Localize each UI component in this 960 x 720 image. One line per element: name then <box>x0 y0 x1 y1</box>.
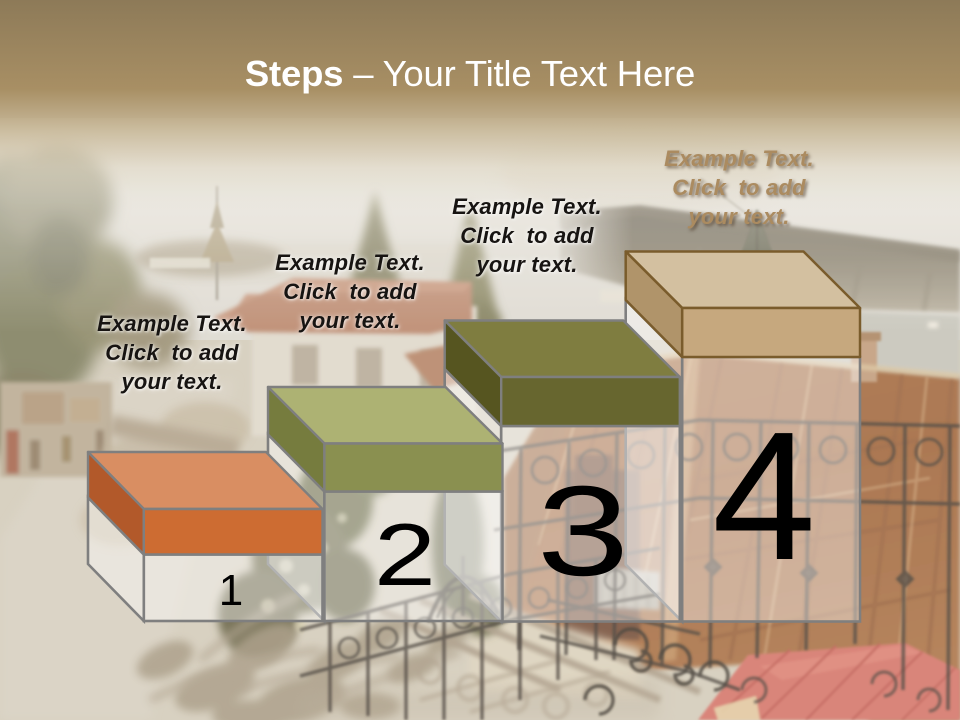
svg-text:1: 1 <box>219 566 243 615</box>
svg-text:4: 4 <box>712 395 816 599</box>
svg-text:2: 2 <box>374 506 436 604</box>
svg-text:3: 3 <box>537 460 630 602</box>
